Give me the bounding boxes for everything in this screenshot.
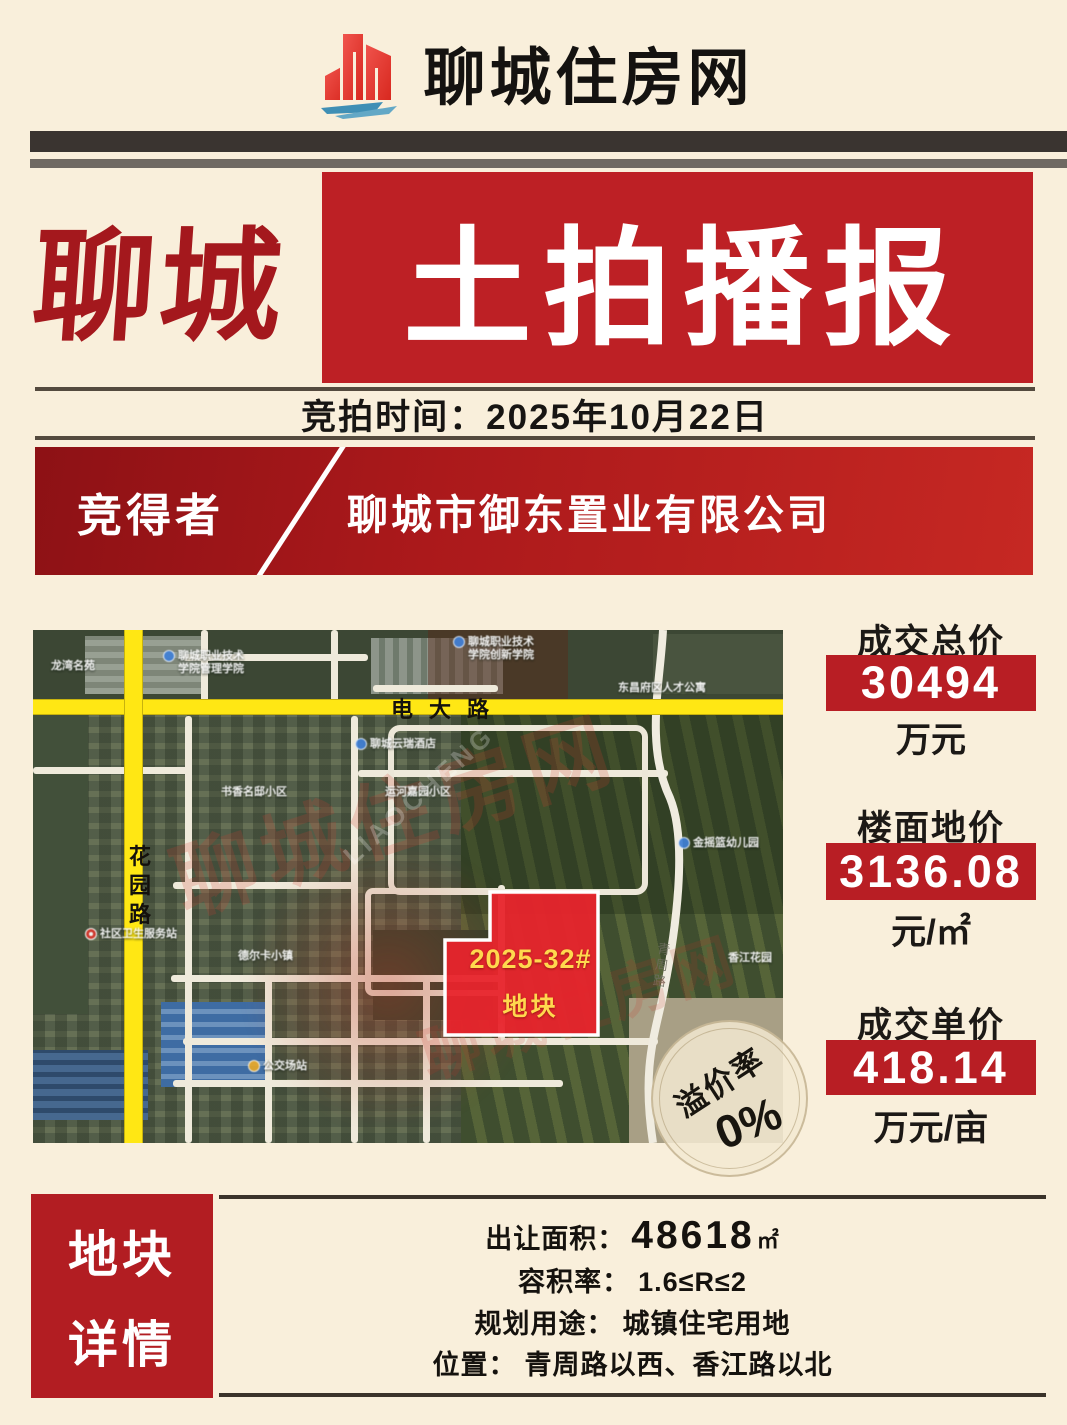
details-rows: 出让面积： 48618 ㎡ 容积率： 1.6≤R≤2 规划用途： 城镇住宅用地 … xyxy=(219,1214,1046,1382)
poi-label: 龙湾名苑 xyxy=(51,660,95,673)
header-divider-dark xyxy=(30,131,1067,152)
poi-icon xyxy=(678,837,690,849)
map-poi: 聊城职业技术 学院创新学院 xyxy=(453,636,534,662)
map-poi: 东昌府区人才公寓 xyxy=(618,682,706,695)
poi-label: 社区卫生服务站 xyxy=(100,928,177,941)
poi-label: 香江花园 xyxy=(728,952,772,965)
poi-label: 书香名邸小区 xyxy=(221,786,287,799)
title-city: 聊城 xyxy=(28,188,330,365)
winner-banner: 竞得者 聊城市御东置业有限公司 xyxy=(35,447,1033,575)
poi-label: 聊城职业技术 学院创新学院 xyxy=(468,636,534,662)
poi-label: 公交场站 xyxy=(263,1060,307,1073)
poi-label: 德尔卡小镇 xyxy=(238,950,293,963)
poi-label: 金摇篮幼儿园 xyxy=(693,837,759,850)
details-title-box: 地块 详情 xyxy=(31,1194,213,1398)
poi-icon xyxy=(355,738,367,750)
poi-icon xyxy=(85,928,97,940)
stat-total-price-value: 30494 xyxy=(861,657,1001,709)
stat-floor-price-unit: 元/㎡ xyxy=(795,904,1067,955)
detail-row-usage: 规划用途： 城镇住宅用地 xyxy=(475,1302,791,1341)
poi-label: 运河嘉园小区 xyxy=(385,786,451,799)
header-divider-gray xyxy=(30,159,1067,168)
map-poi: 金摇篮幼儿园 xyxy=(678,837,759,850)
site-title: 聊城住房网 xyxy=(423,27,753,117)
poi-label: 聊城云瑞酒店 xyxy=(370,738,436,751)
map-poi: 书香名邸小区 xyxy=(221,786,287,799)
map-poi: 运河嘉园小区 xyxy=(385,786,451,799)
detail-ratio-value: 1.6≤R≤2 xyxy=(638,1267,747,1298)
detail-area-unit: ㎡ xyxy=(757,1223,780,1255)
detail-location-value: 青周路以西、香江路以北 xyxy=(525,1343,833,1382)
detail-row-location: 位置： 青周路以西、香江路以北 xyxy=(433,1343,833,1382)
stat-total-price-unit: 万元 xyxy=(795,712,1067,763)
detail-location-label: 位置： xyxy=(433,1343,517,1382)
details-title-line2: 详情 xyxy=(68,1305,176,1377)
map-poi: 香江花园 xyxy=(728,952,772,965)
details-rule-bottom xyxy=(219,1393,1046,1397)
detail-row-plot-ratio: 容积率： 1.6≤R≤2 xyxy=(518,1260,747,1299)
auction-time: 竞拍时间： 2025年10月22日 xyxy=(35,392,1035,436)
plot-word: 地块 xyxy=(463,987,598,1023)
winner-name: 聊城市御东置业有限公司 xyxy=(347,447,831,575)
banner-slash-divider xyxy=(255,447,345,575)
map-poi: 社区卫生服务站 xyxy=(85,928,177,941)
detail-area-label: 出让面积： xyxy=(485,1217,625,1256)
detail-usage-value: 城镇住宅用地 xyxy=(623,1302,791,1341)
poi-icon xyxy=(248,1060,260,1072)
plot-number: 2025-32# xyxy=(463,944,598,975)
stat-total-price-box: 30494 xyxy=(826,655,1036,711)
auction-time-label: 竞拍时间： xyxy=(301,389,486,440)
premium-rate-badge: 溢价率 0% xyxy=(651,1020,808,1177)
map-poi: 德尔卡小镇 xyxy=(238,950,293,963)
title-banner: 土拍播报 xyxy=(322,172,1033,383)
detail-usage-label: 规划用途： xyxy=(475,1302,615,1341)
title-banner-text: 土拍播报 xyxy=(391,185,963,370)
stat-unit-price-value: 418.14 xyxy=(853,1042,1009,1094)
details-title-line1: 地块 xyxy=(68,1215,176,1287)
detail-row-area: 出让面积： 48618 ㎡ xyxy=(485,1214,779,1258)
stat-unit-price-box: 418.14 xyxy=(826,1040,1036,1095)
poi-label: 东昌府区人才公寓 xyxy=(618,682,706,695)
details-rule-top xyxy=(219,1195,1046,1199)
auction-time-value: 2025年10月22日 xyxy=(486,389,769,440)
stat-floor-price-value: 3136.08 xyxy=(839,846,1023,898)
stat-floor-price-box: 3136.08 xyxy=(826,843,1036,900)
site-logo-buildings-icon xyxy=(313,24,409,120)
map-poi: 聊城职业技术 学院管理学院 xyxy=(163,650,244,676)
map-poi: 龙湾名苑 xyxy=(51,660,95,673)
poi-label: 聊城职业技术 学院管理学院 xyxy=(178,650,244,676)
detail-ratio-label: 容积率： xyxy=(518,1260,630,1299)
winner-label: 竞得者 xyxy=(77,447,224,575)
poi-icon xyxy=(163,650,175,662)
land-plot-label: 2025-32# 地块 xyxy=(463,944,598,1023)
poi-icon xyxy=(453,636,465,648)
stat-unit-price-unit: 万元/亩 xyxy=(795,1100,1067,1151)
poster-page: 聊城住房网 聊城 土拍播报 竞拍时间： 2025年10月22日 竞得者 聊城市御… xyxy=(0,0,1067,1425)
map-poi: 公交场站 xyxy=(248,1060,307,1073)
map-poi: 聊城云瑞酒店 xyxy=(355,738,436,751)
rule-bottom xyxy=(35,436,1035,440)
site-header: 聊城住房网 xyxy=(0,18,1067,126)
detail-area-value: 48618 xyxy=(631,1214,754,1258)
